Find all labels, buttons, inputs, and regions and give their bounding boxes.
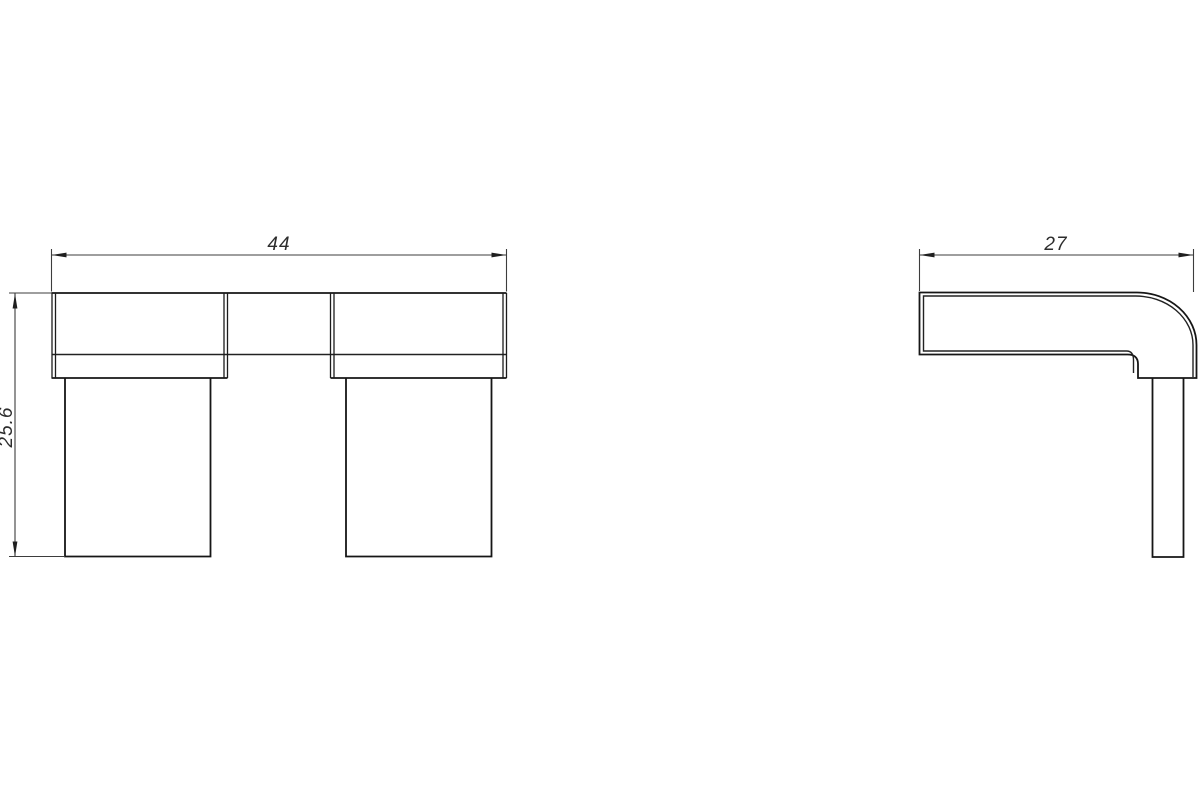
drawing-canvas: 44 25.6 xyxy=(0,0,1200,800)
dimension-width-44: 44 xyxy=(52,234,507,292)
dim-44-label: 44 xyxy=(267,234,290,255)
side-view-part xyxy=(920,293,1197,558)
front-right-leg xyxy=(346,378,492,557)
front-right-block-left-edge xyxy=(331,293,335,378)
side-inner-contour xyxy=(924,296,1194,377)
side-leg xyxy=(1153,378,1184,557)
front-left-leg xyxy=(65,378,211,557)
technical-drawing: 44 25.6 xyxy=(0,0,1200,800)
front-left-outer-edge xyxy=(52,293,56,378)
dim-27-label: 27 xyxy=(1043,234,1068,255)
dim-27-arrow-right xyxy=(1179,253,1194,258)
front-left-block-right-edge xyxy=(224,293,228,378)
dim-27-arrow-left xyxy=(920,253,935,258)
dim-25-6-extension-lines xyxy=(9,293,65,557)
dim-25-6-arrow-bottom xyxy=(13,542,18,557)
side-outer-contour xyxy=(920,293,1197,379)
dim-44-arrow-left xyxy=(52,253,67,258)
dim-44-arrow-right xyxy=(492,253,507,258)
front-view-part xyxy=(52,293,507,557)
dim-25-6-label: 25.6 xyxy=(0,407,17,449)
side-view: 27 xyxy=(920,234,1197,557)
front-view: 44 25.6 xyxy=(0,234,507,557)
front-right-outer-edge xyxy=(503,293,507,378)
dimension-depth-27: 27 xyxy=(920,234,1194,292)
dim-25-6-arrow-top xyxy=(13,294,18,309)
